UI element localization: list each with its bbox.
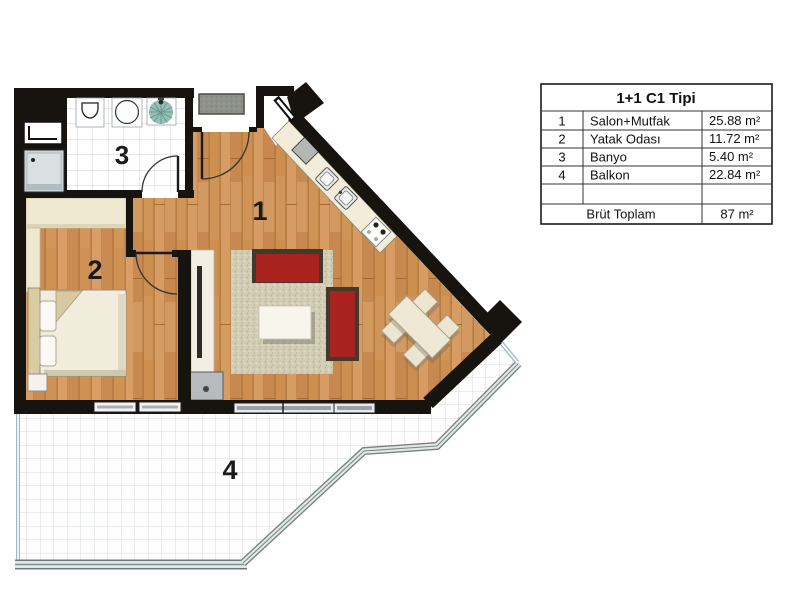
svg-text:3: 3 bbox=[115, 140, 129, 170]
svg-text:22.84 m²: 22.84 m² bbox=[709, 167, 761, 182]
svg-text:4: 4 bbox=[558, 168, 565, 183]
svg-text:5.40 m²: 5.40 m² bbox=[709, 149, 754, 164]
svg-text:Yatak Odası: Yatak Odası bbox=[590, 132, 661, 147]
svg-text:Banyo: Banyo bbox=[590, 150, 627, 165]
svg-text:2: 2 bbox=[558, 132, 565, 147]
svg-text:Balkon: Balkon bbox=[590, 168, 630, 183]
svg-text:Salon+Mutfak: Salon+Mutfak bbox=[590, 114, 670, 129]
svg-text:25.88 m²: 25.88 m² bbox=[709, 113, 761, 128]
svg-text:3: 3 bbox=[558, 150, 565, 165]
svg-text:11.72 m²: 11.72 m² bbox=[709, 131, 760, 146]
svg-text:87 m²: 87 m² bbox=[720, 207, 754, 222]
svg-text:1: 1 bbox=[252, 196, 267, 226]
svg-text:4: 4 bbox=[222, 455, 237, 485]
svg-text:2: 2 bbox=[87, 255, 102, 285]
svg-text:1: 1 bbox=[558, 114, 565, 129]
svg-text:Brüt Toplam: Brüt Toplam bbox=[586, 207, 655, 222]
svg-text:1+1 C1 Tipi: 1+1 C1 Tipi bbox=[616, 90, 695, 107]
